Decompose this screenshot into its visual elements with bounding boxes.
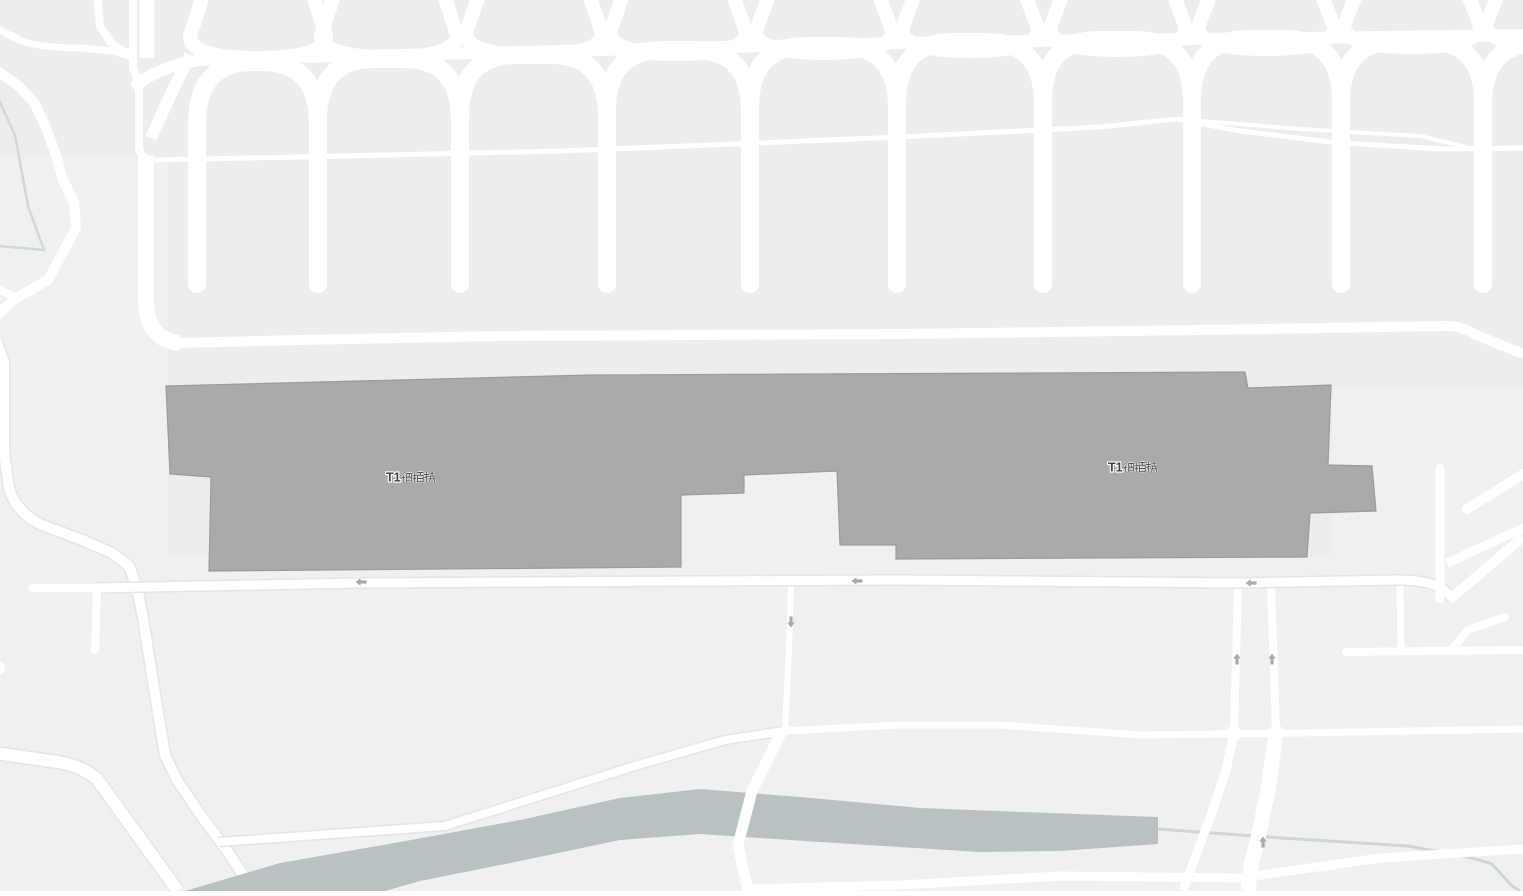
svg-text:T1: T1 — [1108, 461, 1123, 475]
svg-text:T1: T1 — [386, 471, 401, 485]
